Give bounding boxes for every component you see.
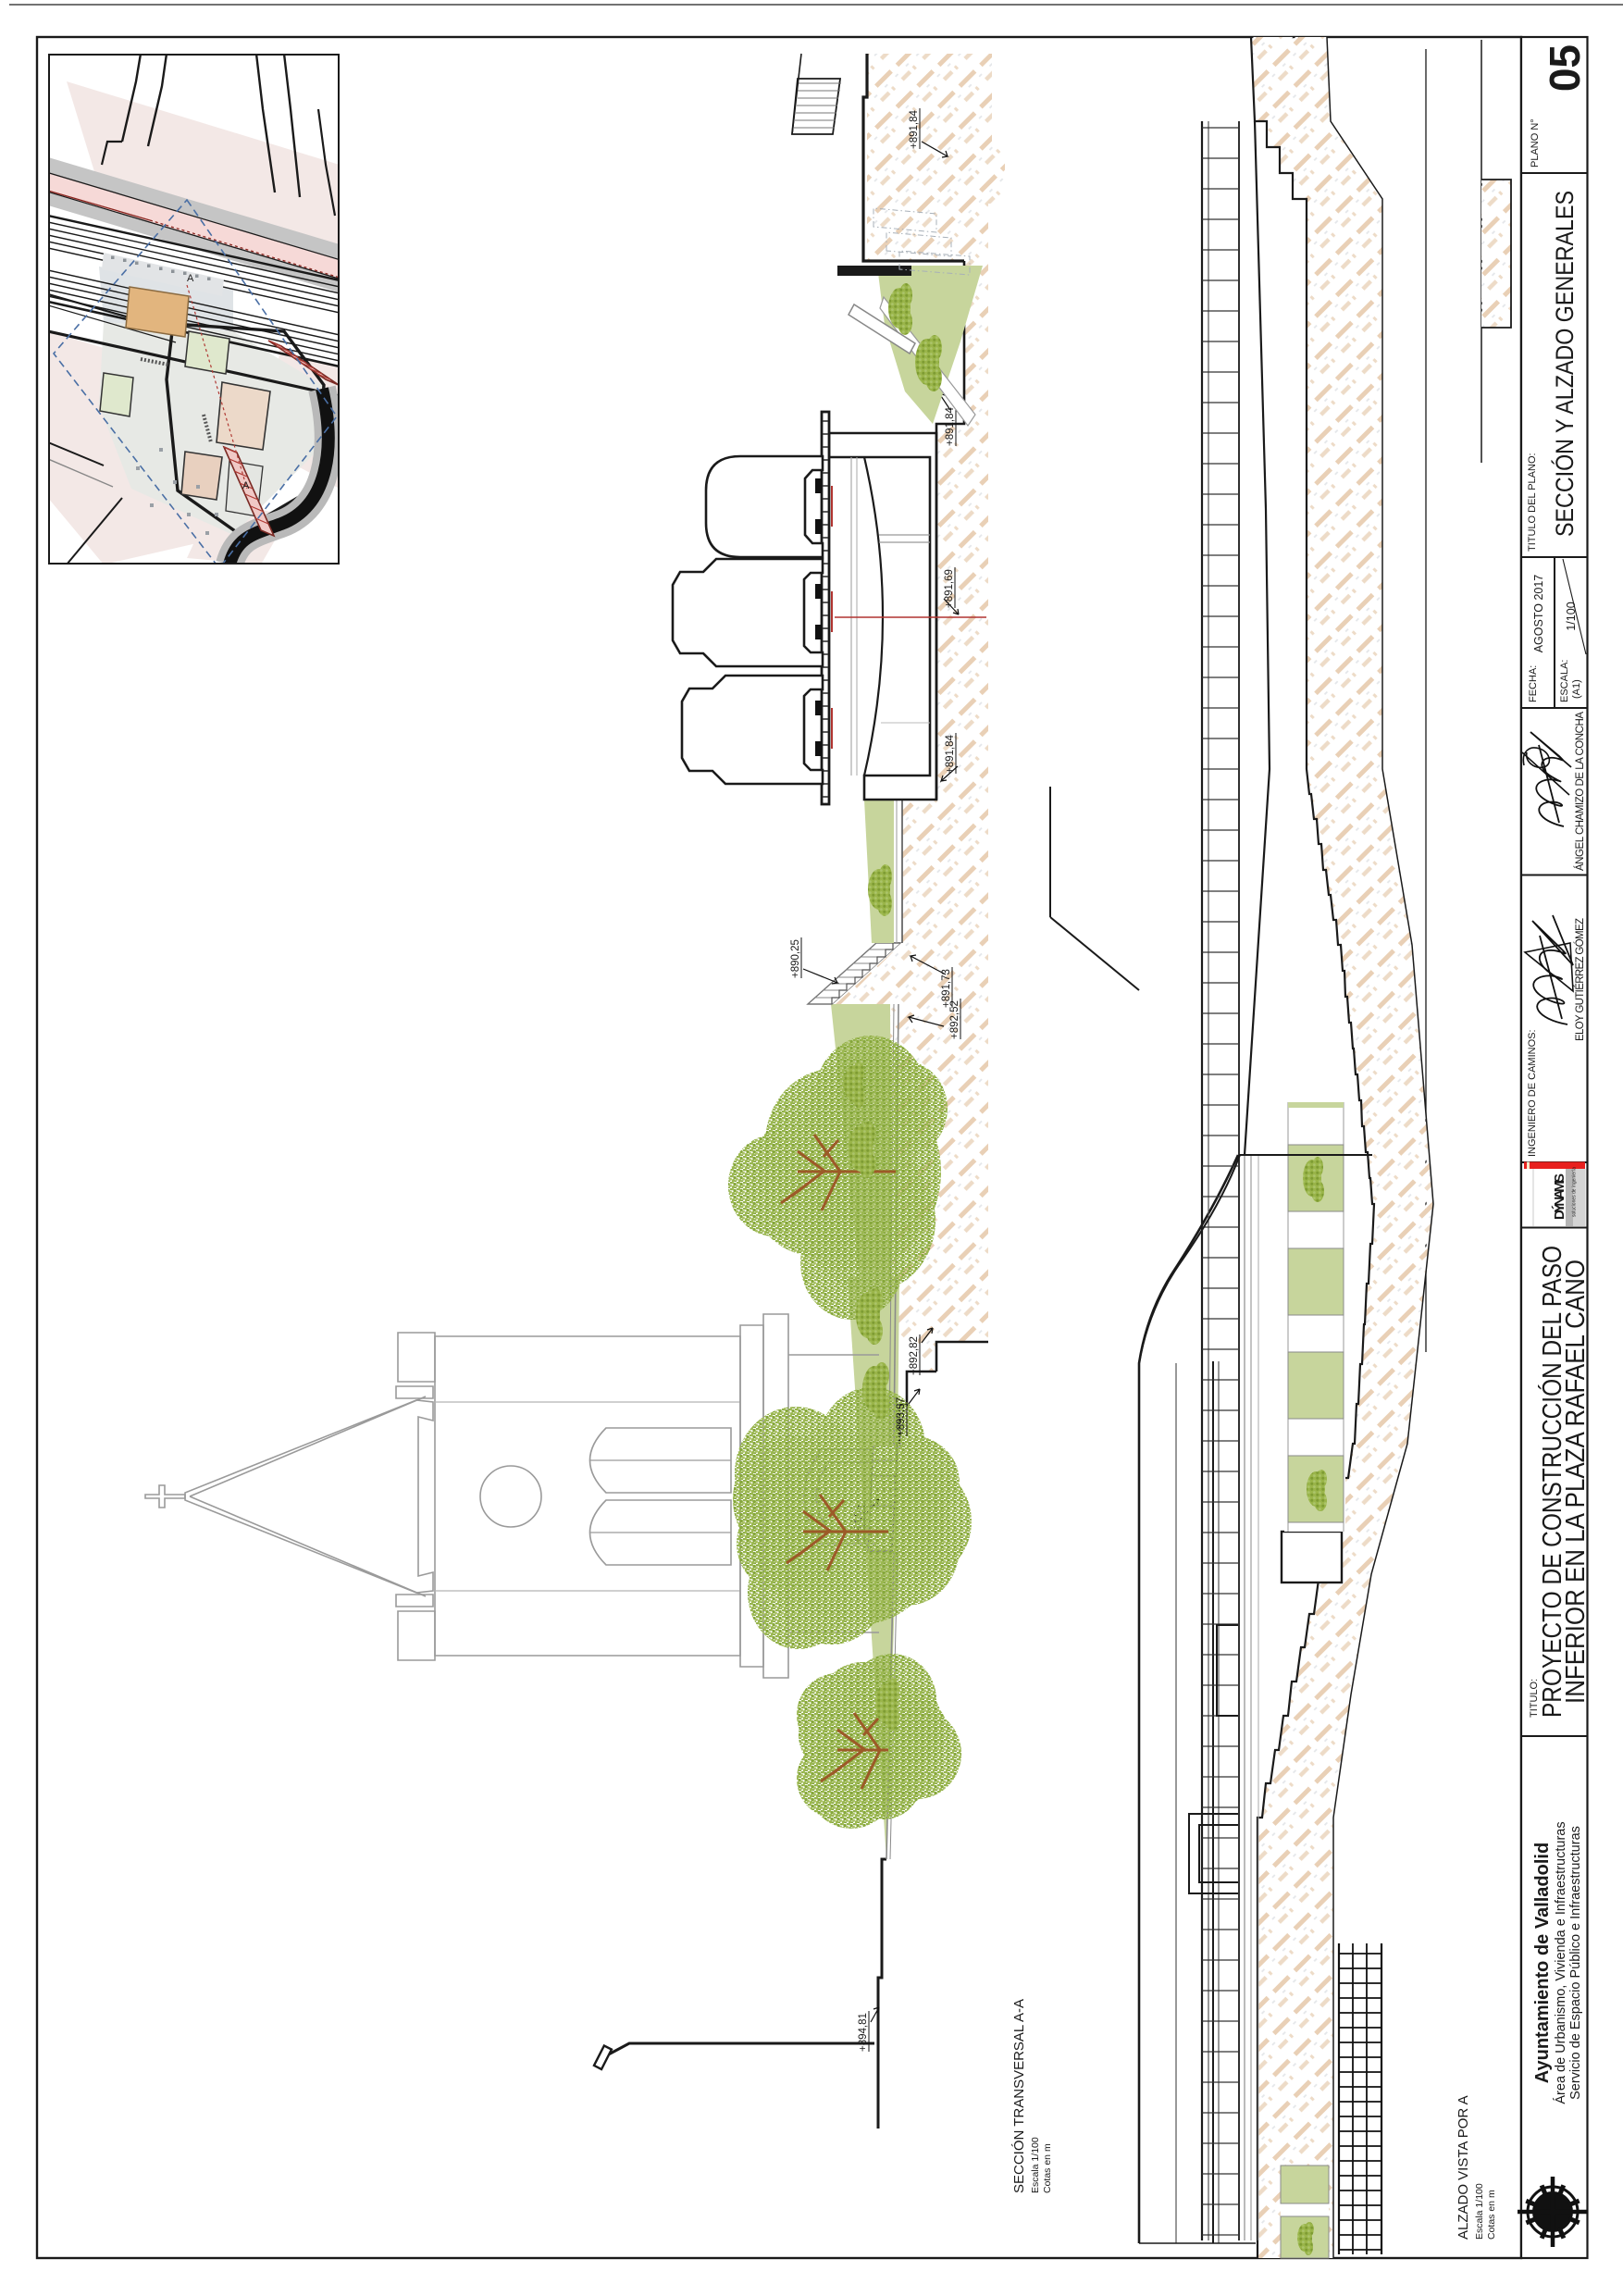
svg-text:05: 05 xyxy=(1541,44,1589,92)
svg-text:+893,37: +893,37 xyxy=(896,1397,907,1436)
svg-text:ESCALA:: ESCALA: xyxy=(1559,660,1570,702)
svg-text:PLANO N°: PLANO N° xyxy=(1530,118,1541,168)
svg-text:SECCIÓN TRANSVERSAL A-A: SECCIÓN TRANSVERSAL A-A xyxy=(1011,1999,1027,2193)
svg-text:+891,84: +891,84 xyxy=(945,735,956,774)
svg-text:+891,73: +891,73 xyxy=(941,969,952,1008)
svg-text:+890,25: +890,25 xyxy=(790,939,801,978)
svg-text:A: A xyxy=(187,273,194,284)
svg-text:Ayuntamiento de Valladolid: Ayuntamiento de Valladolid xyxy=(1532,1843,1553,2083)
svg-text:Servicio de Espacio Público e: Servicio de Espacio Público e Infraestru… xyxy=(1568,1826,1583,2100)
svg-text:DÝNAMIS: DÝNAMIS xyxy=(1551,1173,1567,1220)
svg-text:(A1): (A1) xyxy=(1571,679,1582,699)
svg-text:ALZADO VISTA POR A: ALZADO VISTA POR A xyxy=(1456,2095,1471,2240)
svg-text:ELOY GUTIÉRREZ GÓMEZ: ELOY GUTIÉRREZ GÓMEZ xyxy=(1574,918,1586,1041)
svg-text:+891,84: +891,84 xyxy=(909,110,920,149)
svg-text:+892,82: +892,82 xyxy=(909,1336,920,1375)
svg-text:+891,84: +891,84 xyxy=(945,407,956,446)
svg-text:1/100: 1/100 xyxy=(1565,602,1578,630)
svg-text:ÁNGEL CHAMIZO DE LA CONCHA: ÁNGEL CHAMIZO DE LA CONCHA xyxy=(1574,712,1586,871)
svg-text:Cotas en m: Cotas en m xyxy=(1042,2143,1053,2193)
svg-text:A: A xyxy=(242,480,250,491)
svg-text:INGENIERO DE CAMINOS:: INGENIERO DE CAMINOS: xyxy=(1527,1029,1538,1157)
svg-text:SECCIÓN Y ALZADO GENERALES: SECCIÓN Y ALZADO GENERALES xyxy=(1551,191,1579,537)
svg-text:+891,69: +891,69 xyxy=(944,569,955,608)
svg-text:Escala 1/100: Escala 1/100 xyxy=(1030,2137,1041,2193)
svg-text:INFERIOR EN LA PLAZA RAFAEL CA: INFERIOR EN LA PLAZA RAFAEL CANO xyxy=(1561,1260,1591,1704)
svg-text:TITULO DEL PLANO:: TITULO DEL PLANO: xyxy=(1527,453,1538,552)
svg-text:AGOSTO 2017: AGOSTO 2017 xyxy=(1532,575,1545,653)
svg-text:Cotas en m: Cotas en m xyxy=(1486,2190,1497,2240)
svg-text:Escala 1/100: Escala 1/100 xyxy=(1474,2183,1485,2240)
svg-text:FECHA:: FECHA: xyxy=(1528,665,1539,702)
svg-text:soluciones de ingeniería: soluciones de ingeniería xyxy=(1572,1167,1578,1217)
svg-text:Área de Urbanismo, Vivienda e: Área de Urbanismo, Vivienda e Infraestru… xyxy=(1553,1821,1568,2104)
svg-text:+894,81: +894,81 xyxy=(858,2013,869,2052)
